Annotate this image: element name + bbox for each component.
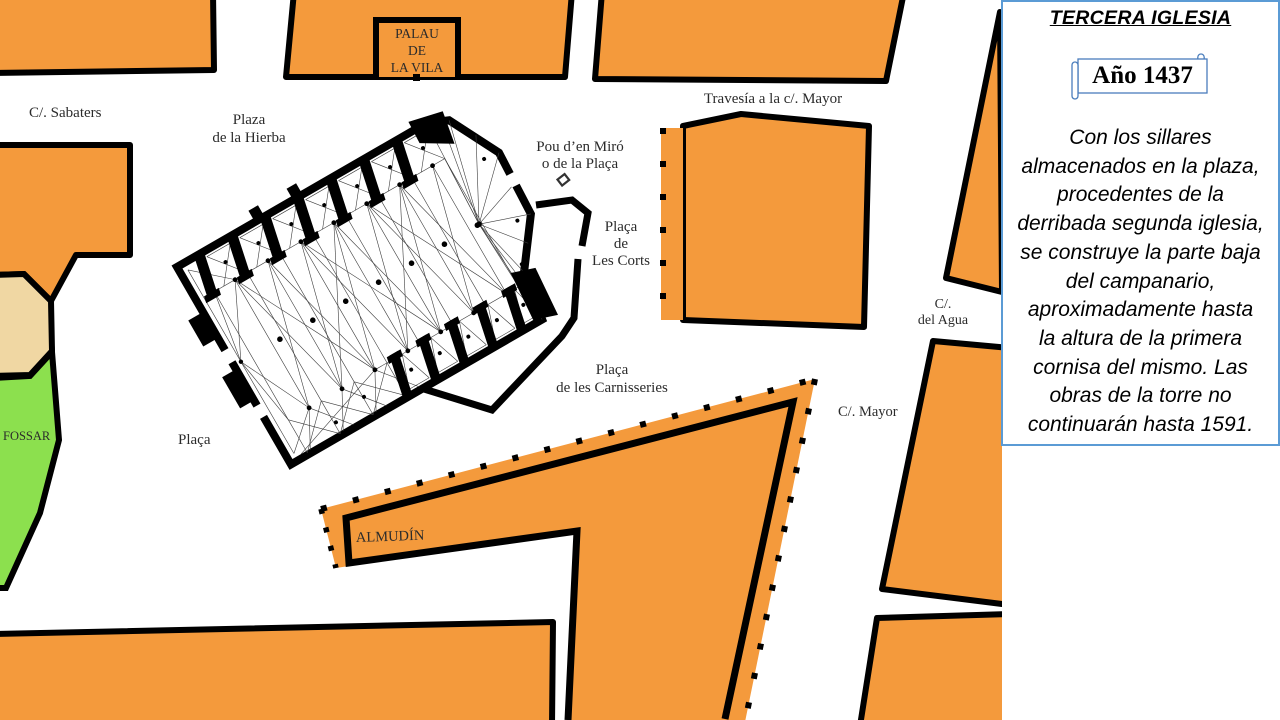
svg-text:de la Hierba: de la Hierba	[212, 130, 286, 146]
svg-text:Plaça: Plaça	[605, 219, 638, 235]
svg-text:o de la Plaça: o de la Plaça	[542, 156, 619, 172]
svg-text:ALMUDÍN: ALMUDÍN	[356, 527, 426, 546]
svg-text:Travesía a la c/. Mayor: Travesía a la c/. Mayor	[704, 91, 842, 107]
svg-text:C/. Mayor: C/. Mayor	[838, 404, 898, 420]
svg-text:DE: DE	[408, 43, 426, 58]
svg-text:Plaça: Plaça	[178, 432, 211, 448]
svg-text:Pou d’en Miró: Pou d’en Miró	[536, 139, 624, 155]
svg-text:de: de	[614, 236, 629, 252]
svg-text:del Agua: del Agua	[918, 313, 969, 328]
svg-text:de les Carnisseries: de les Carnisseries	[556, 380, 668, 396]
svg-text:LA VILA: LA VILA	[391, 60, 444, 75]
svg-text:C/.: C/.	[935, 297, 952, 312]
svg-text:C/. Sabaters: C/. Sabaters	[29, 105, 102, 121]
svg-text:Plaça: Plaça	[596, 362, 629, 378]
svg-text:PALAU: PALAU	[395, 26, 439, 41]
svg-text:FOSSAR: FOSSAR	[3, 429, 51, 443]
svg-text:Plaza: Plaza	[233, 112, 266, 128]
svg-text:Les Corts: Les Corts	[592, 253, 650, 269]
